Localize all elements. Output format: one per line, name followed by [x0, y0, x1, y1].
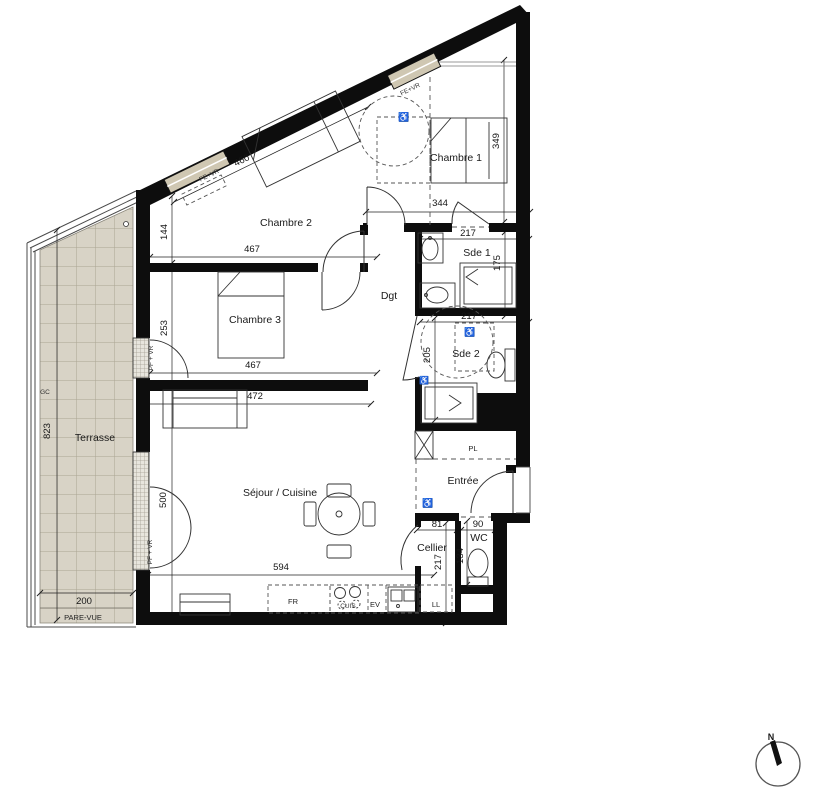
room-label-sde1: Sde 1	[463, 247, 491, 259]
floor-plan: Chambre 1 Chambre 2 Chambre 3 Séjour / C…	[0, 0, 816, 800]
dim-terrasse-width: 200	[76, 596, 92, 607]
door-sde2	[403, 316, 419, 380]
doors	[150, 187, 513, 570]
wall-ch2-ch3	[148, 263, 318, 272]
room-label-chambre3: Chambre 3	[229, 314, 281, 326]
dim-wc-width: 90	[473, 519, 484, 530]
window-chambre3	[133, 338, 149, 378]
dim-wc-depth: 134	[455, 548, 466, 564]
label-cuisson: CUIS	[340, 603, 356, 610]
label-pare-vue: PARE-VUE	[64, 613, 102, 622]
dim-sejour-width: 594	[273, 562, 289, 573]
accessibility-icon-entree: ♿	[422, 497, 433, 508]
terrace-area	[27, 191, 140, 627]
room-label-sde2: Sde 2	[452, 348, 480, 360]
shower-sde1	[460, 263, 516, 308]
door-arc-ch3-window	[150, 340, 188, 378]
label-placard: PL	[468, 444, 477, 453]
label-porte-fenetre-a: PF + VR	[148, 345, 155, 370]
technical-duct	[415, 431, 433, 459]
sofa	[163, 390, 247, 428]
label-evier: EV	[370, 600, 380, 609]
room-label-wc: WC	[470, 532, 488, 544]
shower-sde2	[421, 383, 477, 423]
wall-bottom	[136, 612, 507, 625]
door-chambre1	[367, 187, 405, 225]
room-label-entree: Entrée	[448, 475, 479, 487]
entrance-opening	[516, 467, 530, 513]
dim-ch3-width: 467	[245, 360, 261, 371]
door-arc-french-top	[150, 487, 191, 528]
wall-sde1-west	[415, 232, 422, 313]
door-arc-french-bottom	[150, 528, 191, 568]
wall-entree-south-2	[491, 513, 507, 521]
dim-ch1-depth: 349	[491, 133, 502, 149]
toilet-wc	[468, 549, 488, 586]
turning-square-chambre1	[377, 117, 430, 183]
sideboard	[180, 594, 230, 615]
dim-chain-500: 500	[158, 492, 169, 508]
label-lave-linge: LL	[432, 600, 440, 609]
accessibility-icon-sde2-b: ♿	[419, 375, 429, 385]
dim-chain-144: 144	[159, 224, 170, 240]
label-frigo: FR	[288, 597, 299, 606]
dim-ch2-width: 467	[244, 244, 260, 255]
washbasin-sde2	[420, 283, 455, 308]
dim-cellier-width: 81	[432, 519, 443, 530]
turning-circle-chambre1	[359, 96, 429, 166]
wall-wc-east	[493, 523, 507, 625]
door-chambre2	[323, 231, 364, 272]
terrace-drain	[124, 222, 129, 227]
dashed-items	[182, 96, 494, 613]
toilet-sde2	[487, 349, 515, 381]
wall-sde2-south-east	[477, 393, 530, 431]
accessibility-icon-sde2-a: ♿	[464, 326, 475, 337]
label-porte-fenetre-b: PF + VR	[147, 539, 154, 564]
dim-cellier-depth: 217	[433, 554, 444, 570]
wall-c3	[489, 223, 516, 232]
door-chambre3	[322, 272, 360, 310]
north-needle-icon	[770, 740, 782, 766]
dim-chain-253: 253	[159, 320, 170, 336]
door-sde1	[452, 202, 489, 224]
dim-terrasse-height: 823	[42, 423, 53, 439]
room-label-cellier: Cellier	[417, 542, 447, 554]
wall-c2	[404, 223, 452, 232]
room-label-chambre2: Chambre 2	[260, 217, 312, 229]
compass-north-label: N	[768, 732, 775, 742]
kitchen-sink	[388, 587, 418, 612]
dim-sde1-width: 217	[460, 228, 476, 239]
label-garde-corps: GC	[40, 389, 50, 396]
dim-sde2-depth: 205	[422, 347, 433, 363]
room-label-sejour: Séjour / Cuisine	[243, 487, 317, 499]
fridge-outline	[268, 585, 330, 613]
accessibility-icon-chambre1: ♿	[398, 111, 409, 122]
wall-left-3	[136, 570, 150, 612]
compass: N	[756, 732, 800, 786]
wall-cellier-wc	[455, 521, 461, 612]
room-label-dgt: Dgt	[381, 290, 397, 302]
wall-ch3-sejour	[136, 380, 368, 391]
dim-sde1-depth: 175	[492, 255, 503, 271]
turning-circle-sde2	[421, 306, 493, 378]
dim-sejour-top: 472	[247, 391, 263, 402]
floor-plan-page: Chambre 1 Chambre 2 Chambre 3 Séjour / C…	[0, 0, 816, 800]
room-label-chambre1: Chambre 1	[430, 152, 482, 164]
wall-left-1	[136, 190, 150, 338]
room-label-terrasse: Terrasse	[75, 432, 115, 444]
terrace-tiles	[40, 207, 133, 623]
dim-ch1-width: 344	[432, 198, 448, 209]
dim-sde2-width: 217	[461, 311, 477, 322]
bed-chambre1	[431, 118, 507, 183]
wall-entree-north	[415, 423, 477, 431]
